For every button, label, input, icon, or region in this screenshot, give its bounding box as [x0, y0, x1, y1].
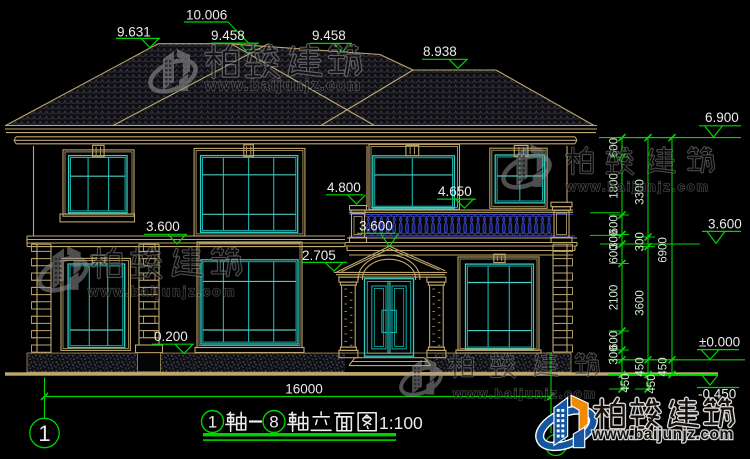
svg-text:www.baijunjz.com: www.baijunjz.com — [591, 426, 734, 443]
svg-text:10.006: 10.006 — [186, 8, 227, 23]
svg-text:8.938: 8.938 — [423, 44, 457, 59]
svg-text:1:100: 1:100 — [379, 413, 423, 433]
svg-text:-0.450: -0.450 — [698, 387, 736, 402]
svg-text:3.600: 3.600 — [708, 217, 742, 232]
svg-text:9.458: 9.458 — [211, 28, 245, 43]
svg-text:16000: 16000 — [285, 382, 323, 397]
svg-text:4.650: 4.650 — [438, 184, 472, 199]
svg-text:300: 300 — [609, 345, 621, 364]
svg-text:1: 1 — [38, 421, 50, 446]
svg-text:300: 300 — [635, 232, 647, 251]
svg-text:4.800: 4.800 — [327, 180, 361, 195]
svg-text:2.705: 2.705 — [302, 248, 336, 263]
svg-text:www.baijunjz.com: www.baijunjz.com — [87, 284, 237, 299]
svg-text:6.900: 6.900 — [705, 110, 739, 125]
svg-text:9.631: 9.631 — [117, 25, 151, 40]
svg-text:600: 600 — [609, 244, 621, 263]
svg-text:2100: 2100 — [609, 285, 621, 311]
svg-text:3600: 3600 — [635, 290, 647, 316]
svg-text:450: 450 — [658, 357, 670, 376]
svg-text:±0.000: ±0.000 — [699, 335, 740, 350]
svg-text:8: 8 — [269, 413, 278, 432]
svg-text:1: 1 — [208, 413, 217, 432]
svg-text:450: 450 — [635, 357, 647, 376]
svg-text:www.baijunjz.com: www.baijunjz.com — [565, 179, 710, 194]
svg-text:6900: 6900 — [658, 237, 670, 263]
svg-text:9.458: 9.458 — [312, 28, 346, 43]
svg-text:450: 450 — [620, 373, 632, 392]
svg-text:0.200: 0.200 — [154, 329, 188, 344]
svg-text:www.baijunjz.com: www.baijunjz.com — [204, 78, 362, 94]
svg-text:3.600: 3.600 — [359, 219, 393, 234]
svg-text:450: 450 — [646, 374, 658, 393]
svg-text:3.600: 3.600 — [146, 219, 180, 234]
